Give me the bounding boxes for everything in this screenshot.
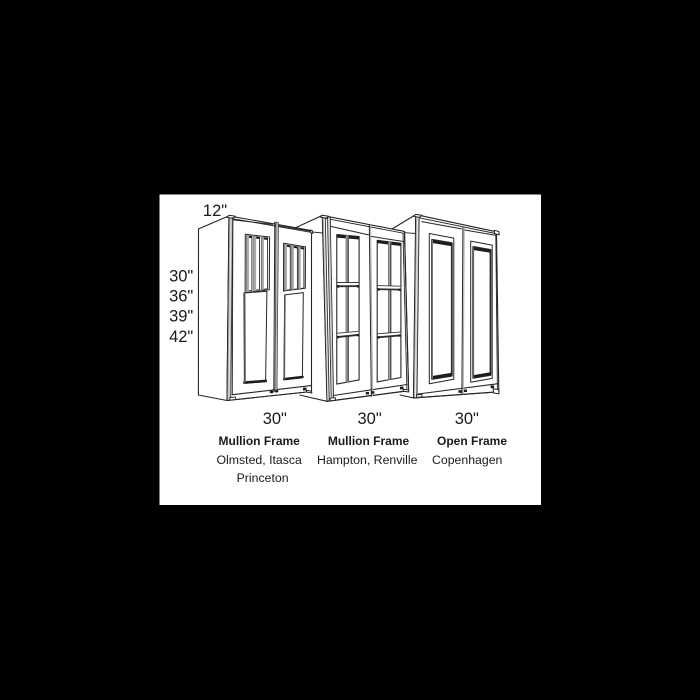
svg-text:39": 39": [169, 308, 193, 326]
svg-text:42": 42": [169, 328, 193, 346]
svg-text:36": 36": [169, 287, 193, 305]
svg-text:30": 30": [455, 410, 479, 428]
svg-text:12": 12": [203, 202, 227, 220]
svg-text:30": 30": [263, 410, 287, 428]
svg-text:30": 30": [357, 410, 381, 428]
svg-text:Copenhagen: Copenhagen: [432, 453, 503, 467]
svg-text:Hampton, Renville: Hampton, Renville: [317, 453, 418, 467]
svg-text:Mullion Frame: Mullion Frame: [328, 434, 410, 448]
svg-text:Mullion Frame: Mullion Frame: [219, 434, 301, 448]
svg-text:30": 30": [169, 268, 193, 286]
svg-text:Olmsted, Itasca: Olmsted, Itasca: [216, 453, 302, 467]
svg-text:Princeton: Princeton: [237, 471, 289, 485]
svg-text:Open Frame: Open Frame: [437, 434, 507, 448]
